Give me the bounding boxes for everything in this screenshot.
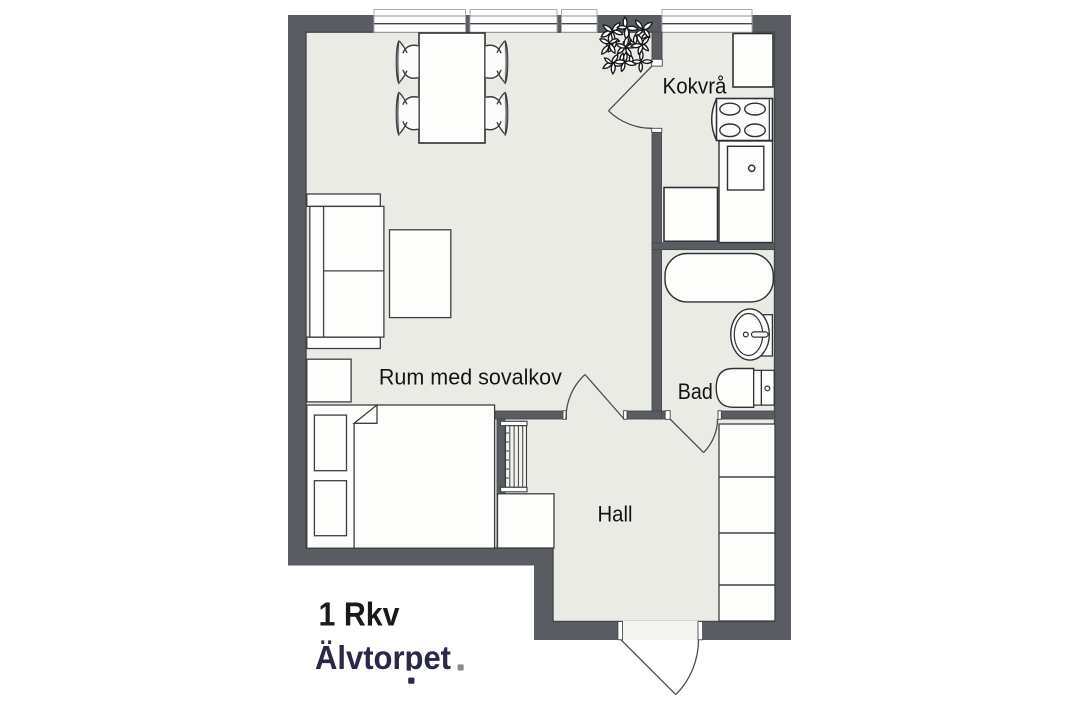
svg-text:Rum med sovalkov: Rum med sovalkov xyxy=(379,365,562,390)
svg-text:Älvtorpet: Älvtorpet xyxy=(315,639,451,676)
svg-text:1 Rkv: 1 Rkv xyxy=(319,596,401,633)
svg-text:Hall: Hall xyxy=(598,502,633,527)
svg-text:Kokvrå: Kokvrå xyxy=(663,74,728,99)
svg-text:Bad: Bad xyxy=(678,379,713,404)
